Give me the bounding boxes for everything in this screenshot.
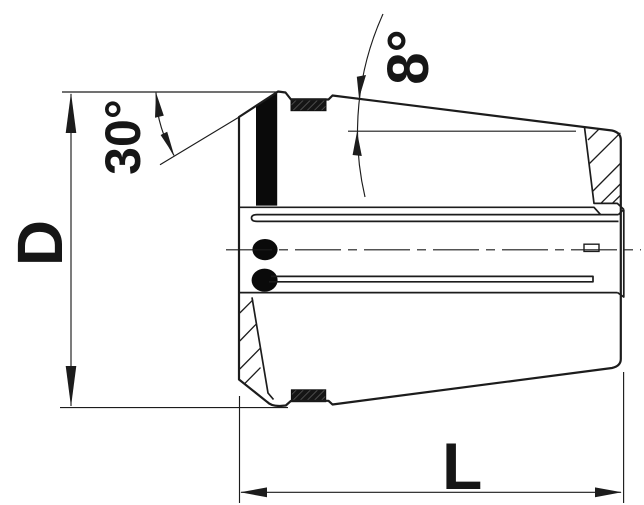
arrowhead-down-icon bbox=[66, 366, 77, 407]
arrowhead-down-icon bbox=[161, 132, 175, 156]
arrowhead-right-icon bbox=[595, 487, 622, 497]
collet-technical-drawing: D 30° 8° L bbox=[0, 0, 644, 505]
rear-section-hatching bbox=[585, 127, 624, 209]
arrowhead-left-icon bbox=[240, 487, 267, 497]
arrowhead-up-icon bbox=[66, 93, 77, 133]
slot-upper bbox=[252, 215, 619, 222]
label-30: 30° bbox=[95, 99, 151, 175]
arrowhead-up-icon bbox=[353, 132, 362, 156]
label-d: D bbox=[4, 220, 76, 266]
angle-30: 30° bbox=[95, 93, 240, 175]
label-l: L bbox=[442, 429, 482, 503]
label-8: 8° bbox=[376, 29, 441, 84]
slot-lower bbox=[269, 276, 593, 281]
collet-outline bbox=[239, 92, 621, 407]
bore-and-slot-lines bbox=[240, 207, 624, 297]
collet-technical-drawing-page: D 30° 8° L bbox=[0, 0, 644, 505]
slot-end-hole-lower bbox=[252, 269, 278, 292]
front-collar-section-fill bbox=[256, 92, 277, 205]
angle-8: 8° bbox=[348, 14, 576, 197]
arrowhead-up-icon bbox=[155, 93, 164, 118]
arrowhead-down-icon bbox=[357, 75, 366, 98]
